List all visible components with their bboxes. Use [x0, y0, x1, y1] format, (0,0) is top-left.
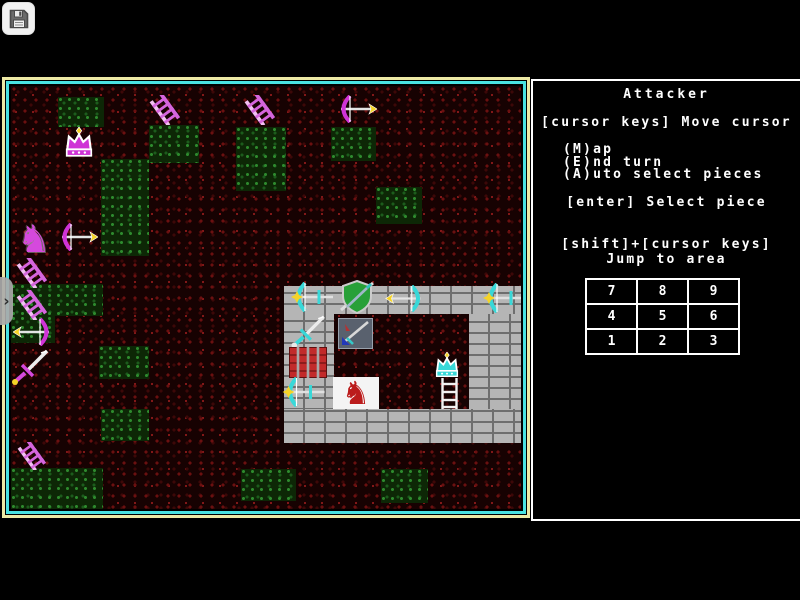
jump-cell-9: 9: [688, 279, 739, 304]
grass-patch: [331, 127, 376, 161]
attacker-archer-2[interactable]: [58, 223, 98, 251]
info-sidebar: Attacker [cursor keys] Move cursor (M)ap…: [531, 79, 800, 521]
castle-wall: [284, 409, 521, 443]
jump-cell-4: 4: [586, 304, 637, 329]
jump-cell-7: 7: [586, 279, 637, 304]
defender-crossbow-2[interactable]: [483, 283, 521, 313]
defender-king[interactable]: [427, 352, 467, 379]
attacker-ladder-5[interactable]: [15, 442, 48, 470]
defender-crossbow-3[interactable]: [281, 377, 328, 407]
hint-select-piece: [enter] Select piece: [533, 195, 800, 210]
defender-shield[interactable]: [337, 280, 377, 314]
selected-piece-panel[interactable]: [338, 318, 373, 349]
attacker-ladder-4[interactable]: [15, 290, 48, 320]
save-button[interactable]: [2, 2, 35, 35]
grass-patch: [381, 469, 428, 503]
attacker-ladder-1[interactable]: [148, 95, 181, 125]
grass-patch: [376, 187, 422, 224]
jump-cell-3: 3: [688, 329, 739, 354]
attacker-ladder-2[interactable]: [243, 95, 276, 125]
castle-wall: [469, 314, 521, 409]
hint-jump-keys: [shift]+[cursor keys]: [533, 237, 800, 252]
jump-cell-6: 6: [688, 304, 739, 329]
jump-cell-8: 8: [637, 279, 688, 304]
game-map-panel: ♞♞: [2, 77, 530, 518]
command-auto-select: (A)uto select pieces: [563, 169, 800, 182]
attacker-knight[interactable]: ♞: [14, 220, 54, 258]
attacker-king[interactable]: [59, 127, 99, 159]
grass-patch: [11, 468, 103, 509]
panel-expand-handle[interactable]: ›: [0, 277, 13, 325]
defender-crossbow-1[interactable]: [290, 282, 336, 312]
grass-patch: [149, 125, 199, 163]
grass-patch: [241, 469, 296, 501]
turn-title: Attacker: [533, 87, 800, 102]
grass-patch: [101, 159, 149, 256]
game-screen: { "overlay": { "save_icon": "floppy-disk…: [0, 0, 800, 600]
jump-cell-5: 5: [637, 304, 688, 329]
floppy-disk-icon: [7, 7, 31, 31]
attacker-archer-3[interactable]: [13, 318, 53, 346]
cursor-knight-panel[interactable]: ♞: [333, 377, 379, 409]
defender-sword[interactable]: [286, 314, 332, 349]
hint-move-cursor: [cursor keys] Move cursor: [533, 115, 800, 130]
attacker-archer-1[interactable]: [337, 95, 377, 123]
command-list: (M)ap (E)nd turn (A)uto select pieces: [563, 144, 800, 182]
chevron-right-icon: ›: [3, 292, 9, 310]
grass-patch: [99, 346, 149, 379]
map-terrain[interactable]: ♞♞: [11, 86, 521, 509]
grass-patch: [236, 127, 286, 191]
jump-grid: 789456123: [585, 278, 740, 355]
jump-cell-1: 1: [586, 329, 637, 354]
attacker-ladder-3[interactable]: [15, 258, 48, 288]
castle-gate[interactable]: [289, 347, 327, 378]
jump-cell-2: 2: [637, 329, 688, 354]
grass-patch: [101, 409, 149, 441]
defender-archer[interactable]: [383, 285, 427, 312]
grass-patch: [58, 97, 104, 127]
attacker-sword[interactable]: [11, 348, 51, 386]
map-border: ♞♞: [6, 81, 526, 514]
defender-ladder[interactable]: [438, 378, 461, 409]
hint-jump-label: Jump to area: [533, 252, 800, 267]
